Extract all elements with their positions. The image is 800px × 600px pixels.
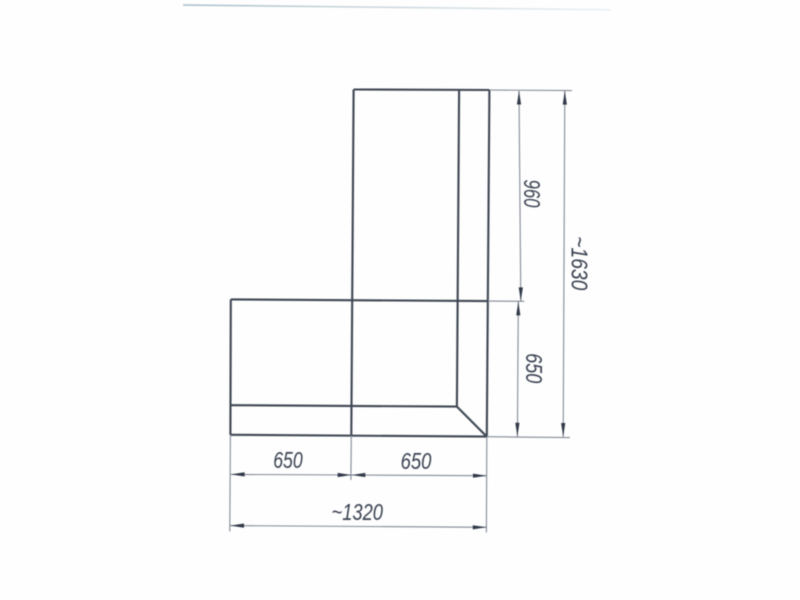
svg-text:650: 650: [521, 353, 547, 383]
svg-text:~1320: ~1320: [332, 499, 384, 525]
svg-text:650: 650: [401, 448, 432, 474]
svg-text:960: 960: [519, 180, 545, 208]
svg-text:~1630: ~1630: [567, 236, 593, 290]
svg-text:650: 650: [273, 447, 303, 473]
